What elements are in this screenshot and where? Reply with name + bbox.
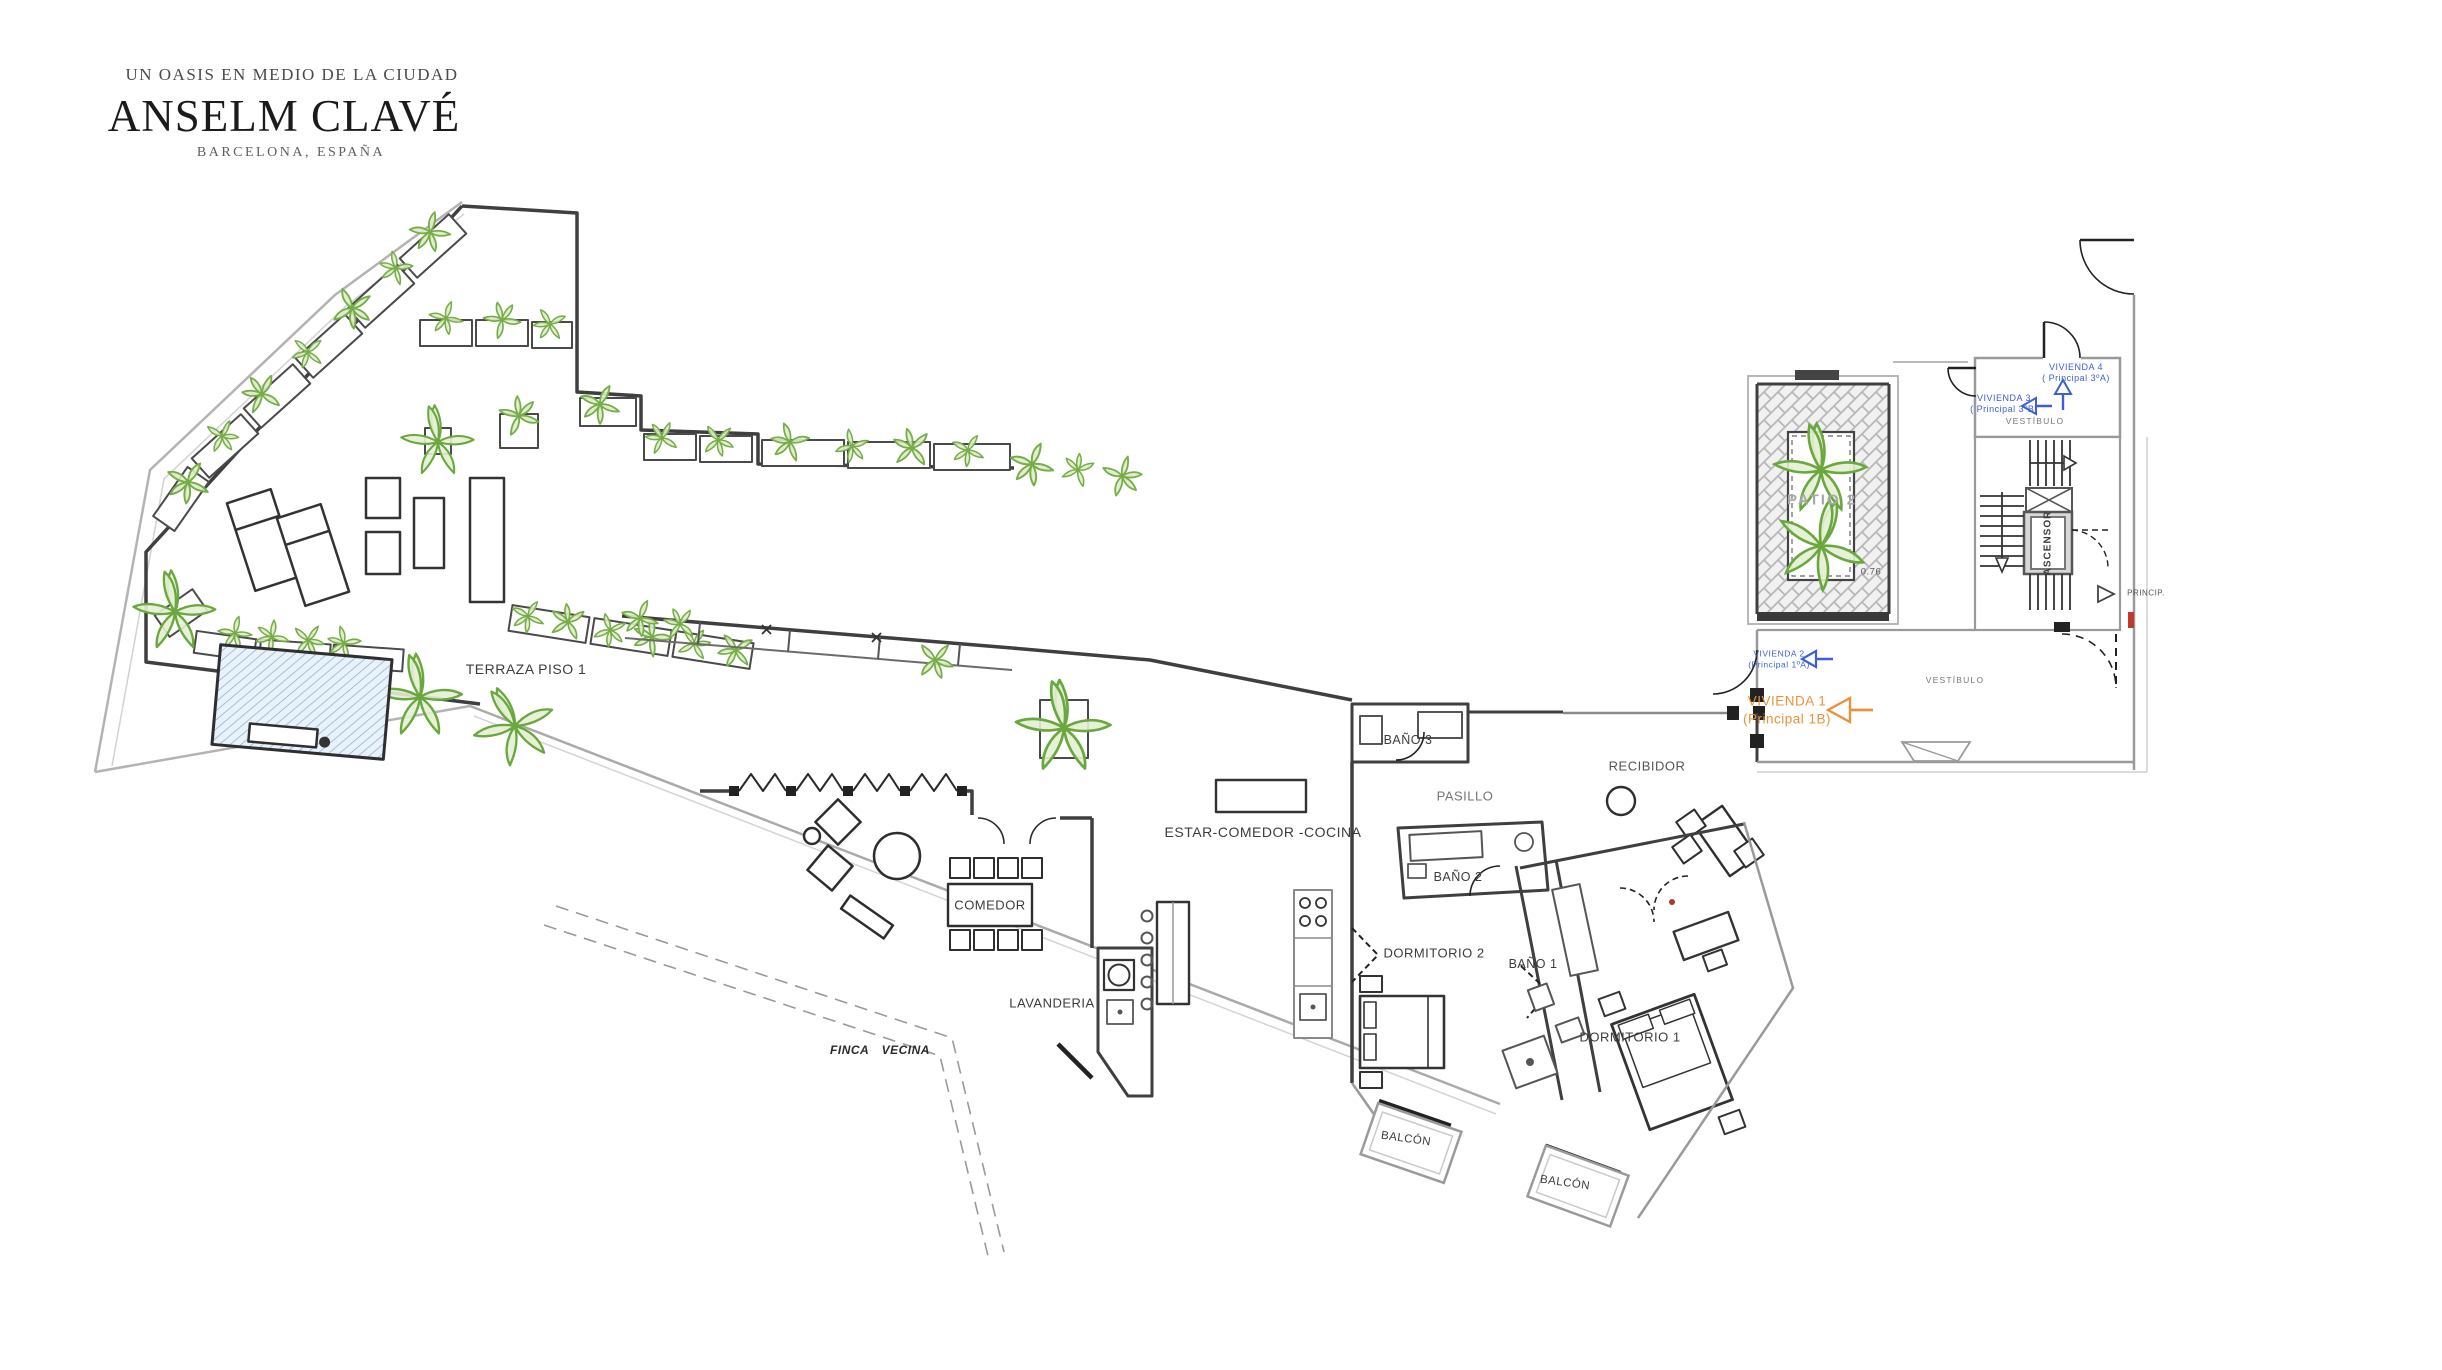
- vivienda-3-line2: ( Principal 3ºB): [1970, 404, 2038, 415]
- lounge-furniture: [804, 799, 920, 938]
- label-vivienda-1: VIVIENDA 1 (Principal 1B): [1743, 692, 1831, 727]
- vivienda-2-line1: VIVIENDA 2: [1748, 648, 1810, 659]
- label-ascensor: ASCENSOR: [2043, 511, 2054, 576]
- project-subtitle: BARCELONA, ESPAÑA: [197, 145, 385, 161]
- bed-1: [1599, 912, 1746, 1134]
- label-dormitorio-2: DORMITORIO 2: [1383, 946, 1484, 961]
- plunge-pool: [212, 645, 392, 760]
- label-vivienda-3: VIVIENDA 3 ( Principal 3ºB): [1970, 393, 2038, 416]
- red-marker: [2128, 612, 2134, 628]
- label-dim-076: 0.76: [1861, 567, 1882, 578]
- vivienda-2-line2: (Principal 1ºA): [1748, 659, 1810, 670]
- label-comedor: COMEDOR: [954, 898, 1025, 913]
- laundry-room: [1058, 948, 1152, 1096]
- vivienda-1-line2: (Principal 1B): [1743, 710, 1831, 728]
- label-lavanderia: LAVANDERIA: [1009, 996, 1094, 1011]
- project-tagline: UN OASIS EN MEDIO DE LA CIUDAD: [125, 65, 458, 85]
- label-estar-comedor-cocina: ESTAR-COMEDOR -COCINA: [1165, 824, 1362, 840]
- label-princip: PRINCIP.: [2127, 589, 2165, 598]
- terrace-piso-1: [133, 206, 1145, 773]
- label-pasillo: PASILLO: [1437, 789, 1494, 804]
- recibidor-furniture: [1607, 787, 1764, 876]
- label-vivienda-4: VIVIENDA 4 ( Principal 3ºA): [2042, 362, 2110, 385]
- label-bano-2: BAÑO 2: [1434, 870, 1483, 884]
- kitchen: [1142, 780, 1333, 1038]
- project-title: ANSELM CLAVÉ: [108, 90, 460, 142]
- vivienda-3-line1: VIVIENDA 3: [1970, 393, 2038, 404]
- label-dormitorio-1: DORMITORIO 1: [1579, 1030, 1680, 1045]
- balconies: [1361, 1103, 1629, 1226]
- vivienda-4-line2: ( Principal 3ºA): [2042, 373, 2110, 384]
- label-vivienda-2: VIVIENDA 2 (Principal 1ºA): [1748, 648, 1810, 669]
- label-bano-1: BAÑO 1: [1509, 957, 1558, 971]
- terrace-furniture: [227, 478, 504, 606]
- label-vestibulo-upper: VESTÍBULO: [2006, 416, 2065, 426]
- bathroom-2: [1398, 822, 1548, 898]
- vivienda-1-arrow-icon: [1828, 698, 1873, 722]
- label-bano-3: BAÑO 3: [1384, 733, 1433, 747]
- label-patio-2: PATIO 2: [1787, 492, 1857, 509]
- bathroom-1: [1502, 983, 1584, 1088]
- vivienda-4-line1: VIVIENDA 4: [2042, 362, 2110, 373]
- floor-plan-page: UN OASIS EN MEDIO DE LA CIUDAD ANSELM CL…: [0, 0, 2442, 1370]
- vivienda-1-line1: VIVIENDA 1: [1743, 692, 1831, 710]
- label-vestibulo-lower: VESTÍBULO: [1926, 675, 1985, 685]
- living-wing: [617, 594, 1765, 1096]
- label-finca-vecina: FINCA VECINA: [830, 1043, 930, 1057]
- bed-2: [1360, 976, 1444, 1088]
- label-terraza-piso-1: TERRAZA PISO 1: [466, 661, 587, 677]
- floor-plan-drawing: [0, 0, 2442, 1370]
- label-recibidor: RECIBIDOR: [1609, 759, 1686, 774]
